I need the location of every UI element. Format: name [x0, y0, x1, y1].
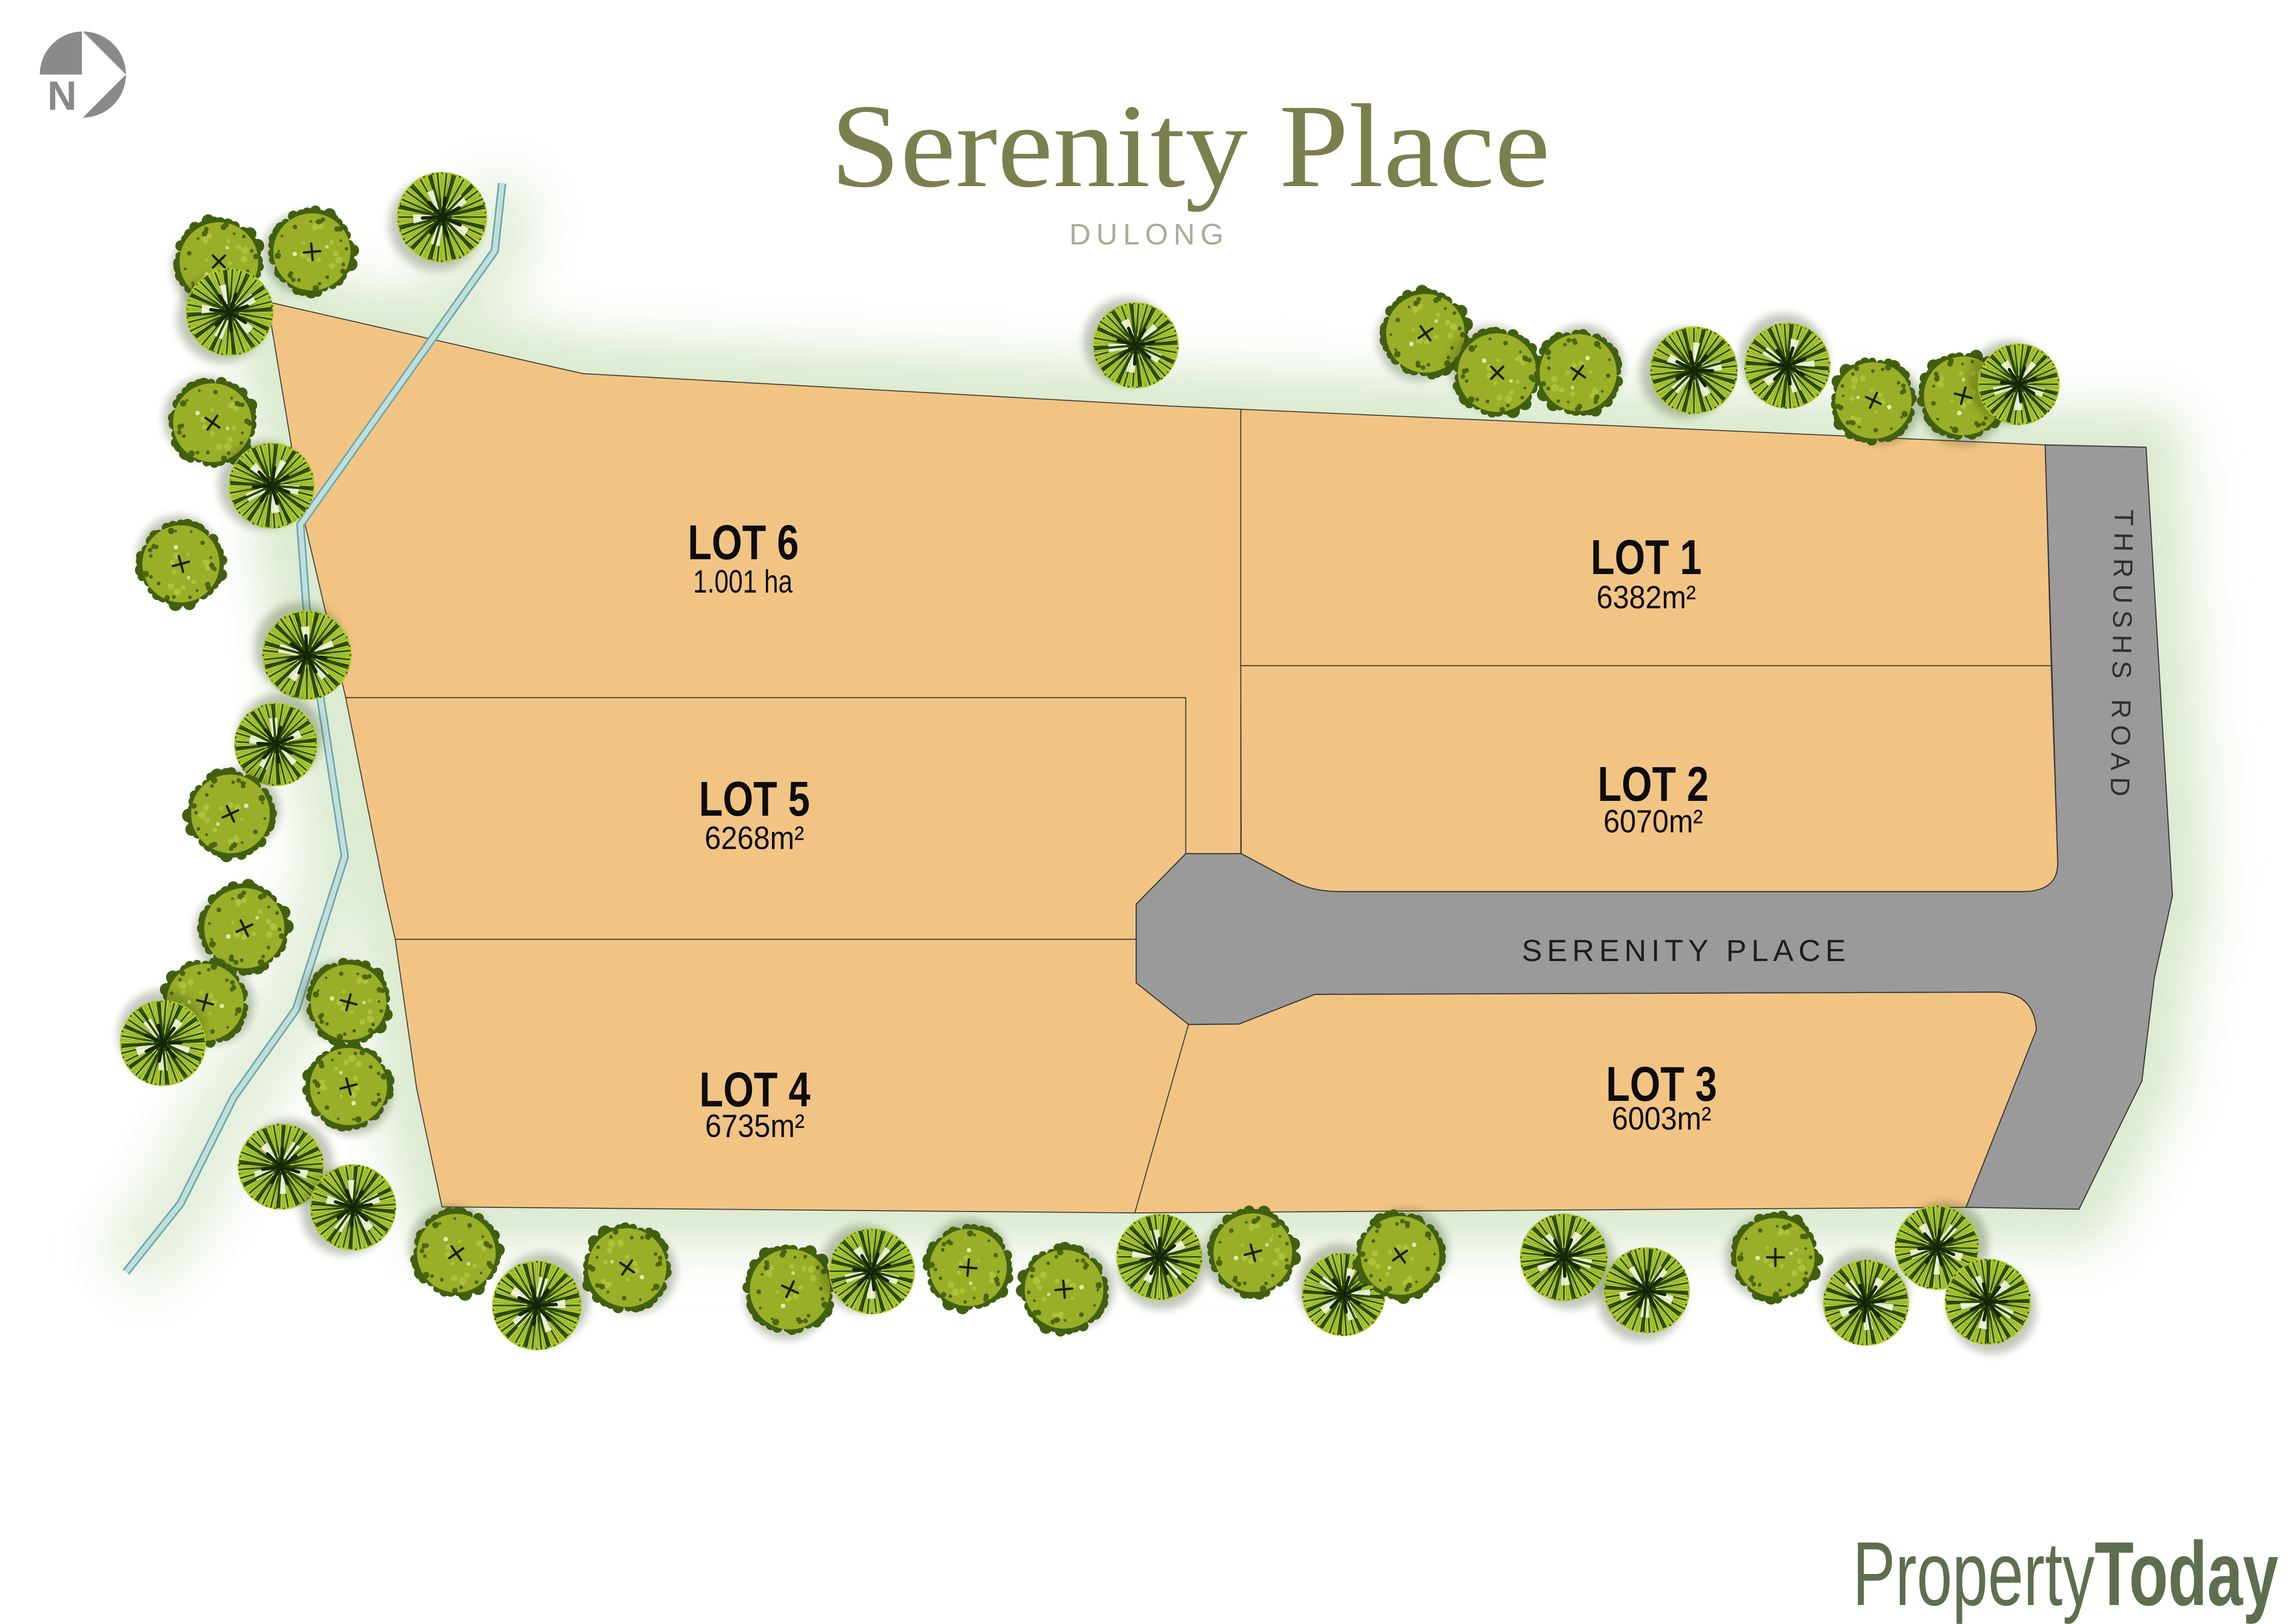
svg-text:6382m²: 6382m² [1597, 579, 1696, 615]
svg-text:LOT 1: LOT 1 [1591, 530, 1702, 585]
svg-text:PropertyToday: PropertyToday [1853, 1523, 2278, 1624]
svg-text:6268m²: 6268m² [705, 820, 804, 856]
svg-text:6003m²: 6003m² [1612, 1100, 1711, 1137]
svg-text:LOT 5: LOT 5 [699, 772, 810, 826]
svg-text:LOT 6: LOT 6 [688, 515, 799, 570]
svg-text:6070m²: 6070m² [1604, 803, 1703, 839]
svg-text:1.001 ha: 1.001 ha [693, 563, 793, 600]
svg-text:6735m²: 6735m² [705, 1108, 805, 1144]
svg-text:Serenity Place: Serenity Place [831, 80, 1550, 212]
svg-text:N: N [47, 73, 77, 119]
